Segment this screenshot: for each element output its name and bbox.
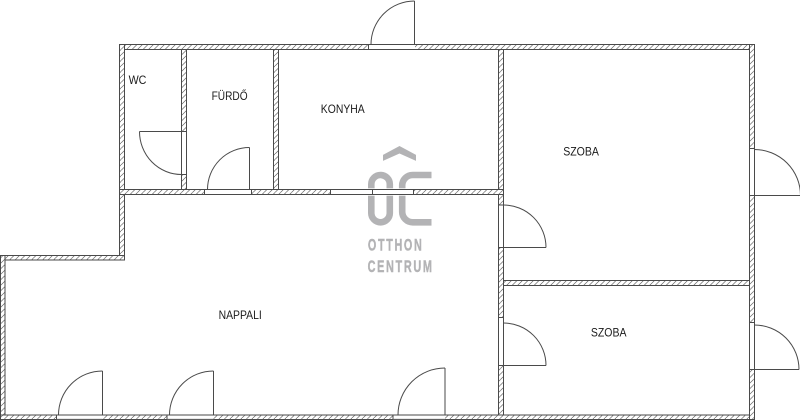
svg-text:CENTRUM: CENTRUM bbox=[368, 258, 434, 276]
svg-text:KONYHA: KONYHA bbox=[321, 102, 365, 116]
svg-text:SZOBA: SZOBA bbox=[591, 326, 627, 340]
svg-text:FÜRDŐ: FÜRDŐ bbox=[212, 88, 248, 103]
svg-text:OTTHON: OTTHON bbox=[368, 236, 424, 254]
svg-text:SZOBA: SZOBA bbox=[563, 145, 599, 159]
svg-text:NAPPALI: NAPPALI bbox=[219, 308, 262, 322]
svg-text:WC: WC bbox=[129, 73, 147, 87]
